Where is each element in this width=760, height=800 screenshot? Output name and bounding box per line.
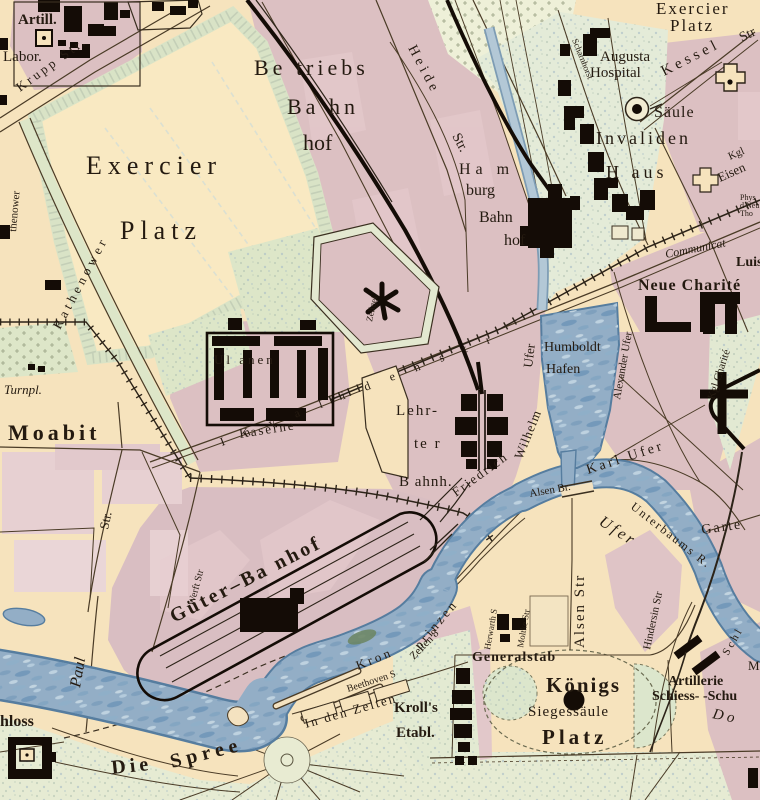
svg-text:Luis: Luis (736, 255, 760, 270)
svg-text:Säule: Säule (654, 104, 695, 121)
svg-text:Ufer: Ufer (520, 342, 538, 368)
svg-text:M: M (748, 658, 760, 673)
svg-text:Siegessäule: Siegessäule (528, 704, 609, 720)
svg-text:hof: hof (504, 232, 526, 249)
svg-text:hloss: hloss (0, 713, 34, 730)
svg-text:Platz: Platz (542, 725, 607, 749)
svg-text:burg: burg (466, 182, 495, 199)
svg-text:Be triebs: Be triebs (254, 55, 369, 80)
svg-text:Generalstab: Generalstab (472, 650, 556, 665)
svg-text:Alsen Str: Alsen Str (572, 574, 588, 648)
svg-text:Platz: Platz (120, 216, 202, 245)
svg-text:Königs: Königs (546, 673, 621, 697)
svg-text:Turnpl.: Turnpl. (4, 382, 42, 397)
svg-text:Moabit: Moabit (8, 420, 100, 445)
svg-text:H aus: H aus (606, 162, 668, 182)
svg-text:Hospital: Hospital (590, 65, 641, 81)
svg-text:Lehr-: Lehr- (396, 403, 439, 419)
svg-text:Ha m: Ha m (459, 161, 514, 178)
svg-text:B ahnh.: B ahnh. (399, 474, 453, 490)
svg-text:Exercier: Exercier (86, 151, 222, 180)
svg-text:Artillerie: Artillerie (668, 674, 723, 689)
svg-text:te r: te r (414, 436, 442, 452)
svg-text:Neue Charité: Neue Charité (638, 277, 741, 294)
svg-text:Ul anen: Ul anen (214, 352, 276, 367)
svg-text:hof: hof (303, 130, 333, 155)
svg-text:Hafen: Hafen (546, 362, 580, 377)
svg-text:Augusta: Augusta (600, 49, 650, 65)
svg-text:Ba hn: Ba hn (287, 94, 359, 119)
svg-text:Die: Die (110, 753, 153, 779)
svg-text:Tho: Tho (740, 209, 753, 218)
svg-text:Humboldt: Humboldt (544, 340, 601, 355)
svg-text:Bahn: Bahn (479, 209, 513, 226)
svg-text:Labor.: Labor. (3, 49, 42, 65)
svg-text:Invaliden: Invaliden (596, 128, 691, 148)
svg-text:Etabl.: Etabl. (396, 725, 435, 741)
svg-text:Schiess- -Schu: Schiess- -Schu (652, 689, 737, 704)
svg-text:Kroll's: Kroll's (394, 700, 438, 716)
svg-text:Artill.: Artill. (18, 12, 57, 28)
svg-text:Platz: Platz (670, 16, 714, 35)
